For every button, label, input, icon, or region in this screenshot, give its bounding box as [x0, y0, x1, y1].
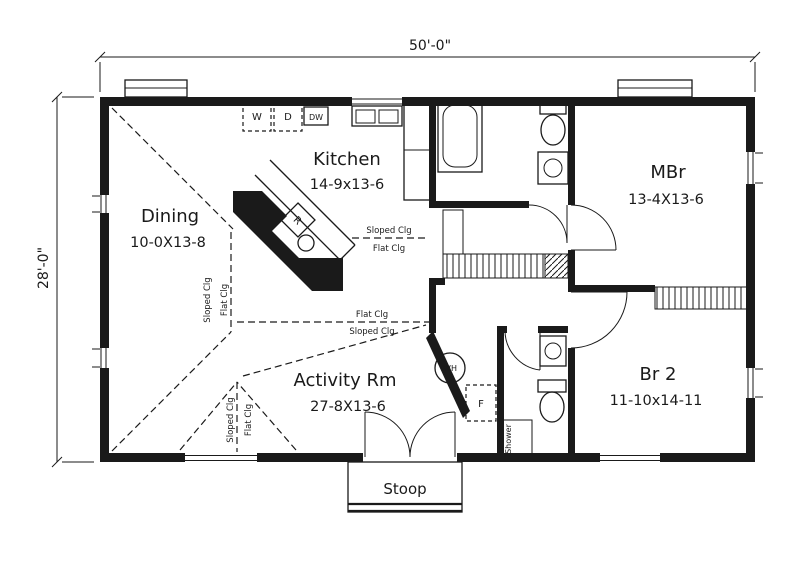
mbr-window	[748, 152, 763, 184]
water-heater-label: WH	[443, 364, 457, 373]
bath1-door	[529, 205, 567, 243]
dimension-left: 28'-0"	[36, 92, 94, 467]
hall-activity-stub	[429, 280, 436, 333]
fireplace	[233, 191, 343, 291]
hall-closets	[443, 210, 568, 278]
ceiling-label: Flat Clg	[244, 404, 254, 436]
overall-width-dimension: 50'-0"	[409, 38, 451, 54]
mbr-size: 13-4X13-6	[628, 192, 704, 208]
dining-label: Dining	[141, 206, 199, 227]
kitchen-size: 14-9x13-6	[310, 177, 384, 193]
ceiling-label: Sloped Clg	[366, 226, 411, 236]
kitchen-window	[352, 99, 402, 104]
bedroom-closet	[655, 287, 748, 309]
furnace-label: F	[478, 399, 484, 410]
dishwasher-label: DW	[309, 113, 323, 122]
stoop: Stoop	[348, 462, 462, 512]
vault-hip-line	[243, 325, 426, 376]
vanity-bath1	[538, 152, 568, 184]
br2-window-right	[748, 368, 763, 398]
entry-door-right-leaf	[410, 412, 455, 457]
br2-door	[571, 292, 627, 348]
overall-depth-dimension: 28'-0"	[36, 247, 52, 289]
window-box-top-right	[618, 80, 692, 97]
mbr-br2-wall	[568, 285, 655, 292]
ceiling-label: Flat Clg	[220, 284, 230, 316]
br2-hall-wall	[568, 348, 575, 462]
ceiling-label: Sloped Clg	[226, 397, 236, 442]
shower-label: Shower	[504, 423, 513, 454]
dryer-label: D	[284, 112, 292, 123]
dimension-top: 50'-0"	[95, 38, 760, 92]
closet-shelves-mbr-br2	[655, 287, 748, 309]
activity-window	[185, 456, 257, 461]
room-labels: Dining 10-0X13-8 Kitchen 14-9x13-6 MBr 1…	[130, 149, 704, 415]
bath1-bottom-wall	[429, 201, 529, 208]
bath2-door	[505, 330, 540, 370]
closet-shelves-horizontal	[443, 254, 545, 278]
vanity-bath2	[540, 336, 566, 366]
br2-size: 11-10x14-11	[610, 393, 703, 409]
mbr-door	[571, 205, 616, 250]
br2-window-bottom	[600, 456, 660, 461]
dining-window-2	[92, 348, 106, 368]
window-box-top-left	[125, 80, 187, 97]
kitchen-label: Kitchen	[313, 149, 381, 170]
ceiling-label: Sloped Clg	[349, 327, 394, 337]
floor-plan-canvas: 50'-0" 28'-0" Sloped Clg Flat Clg Flat C…	[0, 0, 800, 571]
range: R	[281, 203, 315, 237]
dining-size: 10-0X13-8	[130, 235, 206, 251]
mbr-label: MBr	[650, 162, 686, 183]
bath2-fixtures: Shower	[502, 336, 566, 458]
toilet-bath2	[538, 380, 566, 422]
range-label: R	[291, 215, 304, 228]
toilet-bath1	[540, 101, 566, 145]
ceiling-label: Sloped Clg	[203, 277, 213, 322]
br2-label: Br 2	[640, 364, 677, 385]
activity-size: 27-8X13-6	[310, 399, 386, 415]
shower-stall: Shower	[502, 420, 532, 458]
stoop-label: Stoop	[383, 480, 426, 498]
kitchen-sink-bowl	[298, 235, 314, 251]
dining-window	[92, 195, 106, 213]
bath2-top-wall-b	[538, 326, 568, 333]
floor-plan-drawing: 50'-0" 28'-0" Sloped Clg Flat Clg Flat C…	[0, 0, 800, 571]
activity-label: Activity Rm	[293, 370, 396, 391]
closet-shelves-corner	[545, 254, 568, 278]
washer-label: W	[252, 112, 262, 123]
bath1-mbr-wall	[568, 97, 575, 205]
bath2-left-wall	[497, 326, 504, 462]
bath1-fixtures	[438, 100, 568, 184]
closet-shelves-vertical	[443, 210, 463, 254]
ceiling-label: Flat Clg	[373, 244, 405, 254]
ceiling-label: Flat Clg	[356, 310, 388, 320]
utility-closet: WH F	[435, 353, 496, 421]
entry-door-left-leaf	[365, 412, 410, 457]
vault-hip-line	[112, 332, 231, 451]
